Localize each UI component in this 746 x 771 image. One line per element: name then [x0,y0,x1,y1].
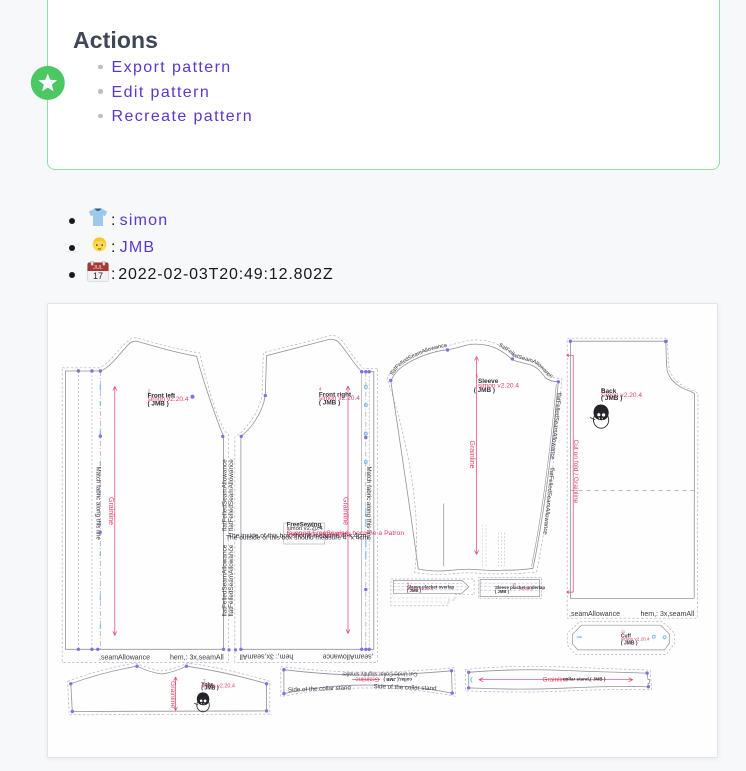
svg-text:hem,: 3x,seamAll: hem,: 3x,seamAll [170,655,224,662]
svg-text:Match fabric along this line: Match fabric along this line [95,467,102,541]
svg-text:,seamAllowance: ,seamAllowance [323,653,374,660]
svg-text:collar,( JMB ): collar,( JMB ) [383,677,412,682]
svg-text:( JMB ): ( JMB ) [495,589,510,594]
svg-text:The outside of this box should: The outside of this box should measure 4… [226,535,369,542]
svg-text:Side of the collar stand: Side of the collar stand [288,684,352,693]
svg-text:flatFelledSeamAllowance: flatFelledSeamAllowance [389,343,447,376]
svg-text:( JMB ): ( JMB ) [201,686,219,692]
svg-text:,seamAllowance: ,seamAllowance [569,611,620,618]
svg-text:flatFelledSeamAllowance: flatFelledSeamAllowance [498,343,554,380]
svg-text:10: 10 [512,583,516,587]
svg-text:17: 17 [93,271,103,281]
svg-text:Cut on fold / Grainline: Cut on fold / Grainline [572,440,579,504]
svg-text:( JMB ): ( JMB ) [601,395,622,402]
svg-text:( JMB ): ( JMB ) [474,387,495,394]
svg-text:collar stand,( JMB ): collar stand,( JMB ) [563,677,606,682]
svg-text:Grainline: Grainline [468,441,475,469]
svg-text:( JMB ): ( JMB ) [148,401,169,408]
svg-text:v2.20.4: v2.20.4 [519,586,533,591]
svg-text:flatFelledSeamAllowance: flatFelledSeamAllowance [228,459,235,531]
svg-text:simon v2.20.4: simon v2.20.4 [407,586,434,591]
svg-text:( JMB ): ( JMB ) [621,641,638,647]
svg-text:Side of the collar stand: Side of the collar stand [373,683,437,692]
svg-text:,seamAllowance: ,seamAllowance [99,655,150,662]
svg-text:Grainline: Grainline [355,675,380,681]
svg-text:Grainline: Grainline [107,497,114,525]
svg-text:flatFelledSeamAllowance: flatFelledSeamAllowance [548,392,561,460]
svg-text:flatFelledSeamAllowance: flatFelledSeamAllowance [228,544,235,616]
svg-text:flatFelledSeamAllowance: flatFelledSeamAllowance [541,467,554,535]
svg-text:hem,: 3x,seamAll: hem,: 3x,seamAll [641,611,695,618]
svg-text:Grainline: Grainline [341,497,348,525]
svg-text:( JMB ): ( JMB ) [319,400,340,407]
svg-text:hem,: 3x,seamAll: hem,: 3x,seamAll [239,653,293,660]
svg-text:Grainline: Grainline [169,681,176,708]
